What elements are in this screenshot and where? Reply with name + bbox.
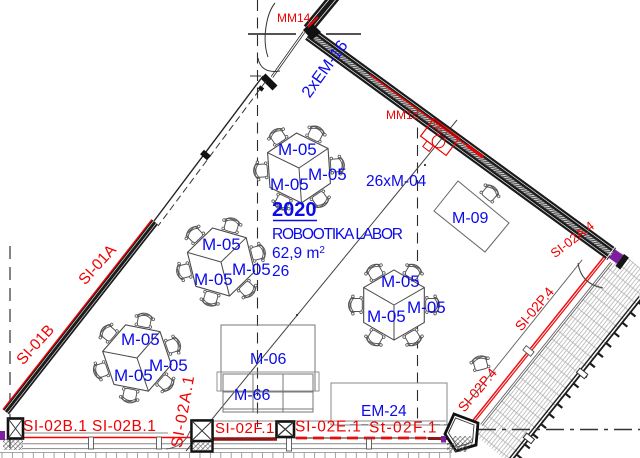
svg-text:M-05: M-05 — [270, 175, 309, 194]
svg-text:SI-02F.1: SI-02F.1 — [215, 420, 275, 437]
svg-text:62,9 m2: 62,9 m2 — [272, 245, 325, 262]
svg-text:SI-02B.1: SI-02B.1 — [92, 418, 156, 435]
svg-text:SI-02E.1: SI-02E.1 — [295, 419, 362, 436]
svg-text:M-05: M-05 — [149, 356, 188, 375]
svg-text:M-05: M-05 — [278, 140, 317, 159]
svg-text:M-05: M-05 — [202, 235, 241, 254]
svg-text:26xM-04: 26xM-04 — [366, 173, 427, 190]
svg-text:M-09: M-09 — [452, 210, 489, 227]
svg-text:M-05: M-05 — [194, 270, 233, 289]
svg-text:MM14: MM14 — [277, 11, 311, 25]
svg-text:M-05: M-05 — [232, 260, 271, 279]
svg-text:M-05: M-05 — [407, 298, 446, 317]
svg-text:M-05: M-05 — [121, 330, 160, 349]
svg-text:M-05: M-05 — [114, 366, 153, 385]
svg-text:26: 26 — [272, 263, 289, 280]
svg-text:M-05: M-05 — [381, 272, 420, 291]
svg-text:St-02F.1: St-02F.1 — [369, 420, 438, 437]
svg-text:M-05: M-05 — [308, 165, 347, 184]
svg-text:M-05: M-05 — [367, 307, 406, 326]
svg-text:MM1c: MM1c — [386, 108, 419, 122]
svg-text:EM-24: EM-24 — [361, 403, 407, 420]
svg-text:2020: 2020 — [272, 199, 317, 221]
svg-text:SI-02B.1: SI-02B.1 — [23, 418, 87, 435]
svg-text:ROBOOTIKA LABOR: ROBOOTIKA LABOR — [272, 226, 403, 243]
svg-text:M-66: M-66 — [234, 387, 271, 404]
svg-text:M-06: M-06 — [250, 351, 287, 368]
